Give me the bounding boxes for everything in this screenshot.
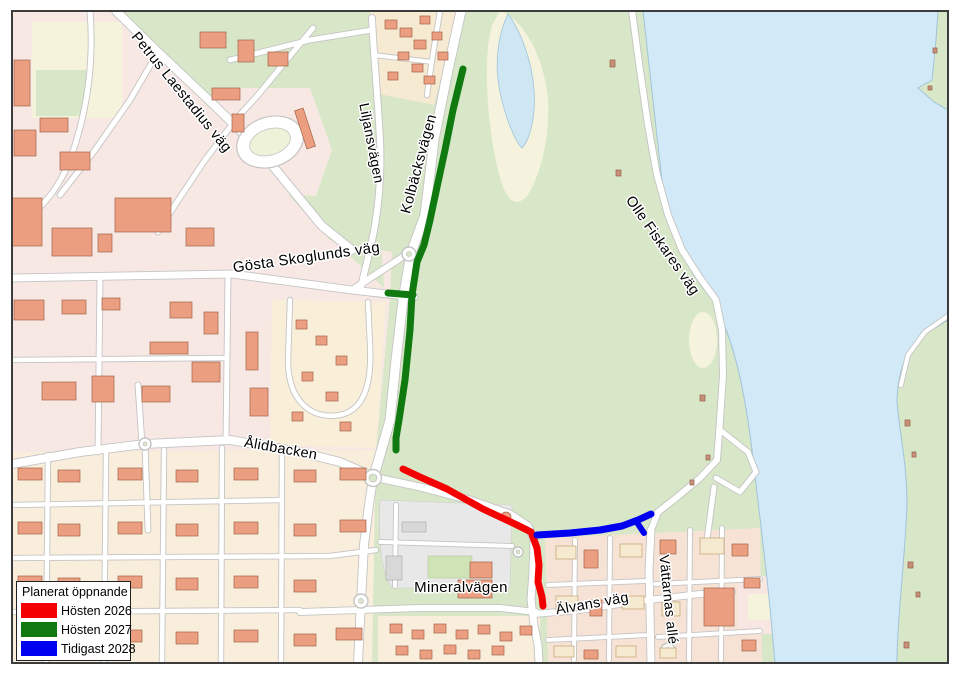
- building: [296, 320, 307, 329]
- building: [316, 336, 327, 345]
- building: [12, 198, 42, 246]
- building: [14, 60, 30, 106]
- building: [238, 40, 254, 62]
- building: [62, 300, 86, 314]
- building: [388, 72, 398, 80]
- building: [700, 538, 724, 554]
- building: [176, 524, 198, 536]
- building: [500, 632, 512, 641]
- building: [115, 198, 171, 232]
- building: [732, 544, 748, 556]
- building: [470, 562, 492, 578]
- building: [102, 298, 120, 310]
- building: [98, 234, 112, 252]
- building: [18, 522, 42, 534]
- building: [326, 392, 338, 401]
- building: [176, 632, 198, 644]
- building: [690, 480, 694, 485]
- building: [246, 332, 258, 370]
- building: [176, 578, 198, 590]
- building: [118, 522, 142, 534]
- building: [660, 540, 676, 554]
- building: [396, 646, 408, 655]
- building: [905, 420, 910, 426]
- building: [620, 544, 642, 557]
- building: [340, 468, 366, 480]
- building: [186, 228, 214, 246]
- building: [912, 452, 916, 457]
- building: [385, 20, 397, 29]
- building: [302, 372, 313, 381]
- building: [234, 576, 258, 588]
- building: [420, 16, 430, 24]
- building: [554, 646, 574, 657]
- building: [294, 634, 316, 646]
- building: [292, 412, 303, 421]
- building: [700, 395, 705, 401]
- building: [234, 522, 258, 534]
- building: [336, 356, 347, 365]
- building: [478, 625, 490, 634]
- building: [402, 522, 426, 532]
- building: [584, 650, 598, 659]
- building: [432, 32, 442, 40]
- building: [390, 624, 402, 633]
- building: [412, 64, 423, 72]
- building: [200, 32, 226, 48]
- building: [908, 562, 913, 568]
- building: [58, 524, 80, 536]
- building: [928, 86, 932, 90]
- building: [520, 626, 532, 635]
- building: [616, 170, 621, 176]
- building: [456, 630, 468, 639]
- building: [420, 650, 432, 659]
- building: [438, 52, 448, 60]
- legend-label-hosten-2027: Hösten 2027: [61, 623, 132, 637]
- building: [150, 342, 188, 354]
- building: [192, 362, 220, 382]
- building: [424, 76, 435, 84]
- building: [142, 386, 170, 402]
- building: [744, 578, 760, 588]
- building: [400, 28, 412, 37]
- building: [610, 60, 615, 67]
- building: [234, 468, 258, 480]
- building: [118, 468, 142, 480]
- building: [204, 312, 218, 334]
- building: [18, 468, 42, 480]
- building: [92, 376, 114, 402]
- building: [212, 88, 240, 100]
- building: [616, 646, 636, 657]
- building: [294, 524, 316, 536]
- legend-row-tidigast-2028: Tidigast 2028: [21, 639, 126, 658]
- building: [40, 118, 68, 132]
- legend-label-tidigast-2028: Tidigast 2028: [61, 642, 136, 656]
- building: [444, 645, 456, 654]
- building: [232, 114, 244, 132]
- building: [386, 556, 402, 580]
- building: [14, 130, 36, 156]
- building: [42, 382, 76, 400]
- building: [468, 650, 480, 659]
- building: [58, 470, 80, 482]
- building: [414, 40, 426, 49]
- map-screenshot: Petrus Laestadius vägLiljansvägenKolbäck…: [0, 0, 960, 679]
- street-label-mineralvagen: Mineralvägen: [414, 579, 508, 596]
- building: [916, 592, 920, 597]
- building: [584, 550, 598, 568]
- building: [294, 580, 316, 592]
- map-legend: Planerat öppnande Hösten 2026 Hösten 202…: [16, 581, 131, 661]
- legend-label-hosten-2026: Hösten 2026: [61, 604, 132, 618]
- building: [492, 646, 504, 655]
- building: [170, 302, 192, 318]
- legend-row-hosten-2026: Hösten 2026: [21, 601, 126, 620]
- building: [60, 152, 90, 170]
- building: [294, 470, 316, 482]
- building: [412, 630, 424, 639]
- legend-title: Planerat öppnande: [22, 585, 126, 599]
- building: [556, 546, 576, 559]
- building: [660, 648, 676, 658]
- legend-swatch-hosten-2026: [21, 603, 57, 618]
- building: [340, 422, 351, 431]
- building: [250, 388, 268, 416]
- building: [706, 455, 710, 460]
- building: [52, 228, 92, 256]
- building: [904, 642, 909, 648]
- legend-swatch-tidigast-2028: [21, 641, 57, 656]
- building: [704, 588, 734, 626]
- building: [340, 520, 366, 532]
- building: [14, 300, 44, 320]
- building: [336, 628, 362, 640]
- route-hosten-2027-gosta-link: [388, 293, 413, 295]
- legend-swatch-hosten-2027: [21, 622, 57, 637]
- building: [398, 52, 409, 60]
- building: [742, 640, 756, 651]
- building: [234, 630, 258, 642]
- building: [933, 48, 937, 53]
- building: [268, 52, 288, 66]
- legend-row-hosten-2027: Hösten 2027: [21, 620, 126, 639]
- building: [434, 624, 446, 633]
- building: [176, 470, 198, 482]
- map-canvas: Petrus Laestadius vägLiljansvägenKolbäck…: [0, 0, 960, 679]
